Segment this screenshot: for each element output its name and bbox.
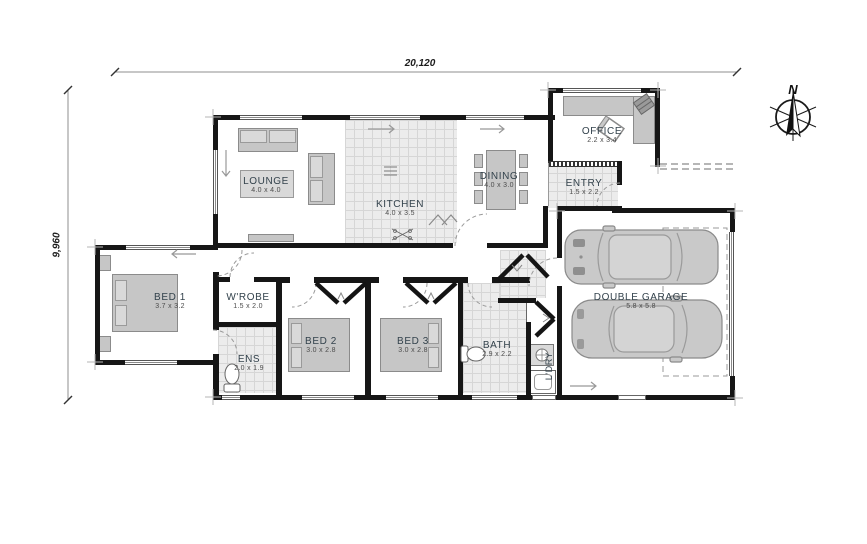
room-label-bath: BATH 2.9 x 2.2 — [482, 340, 512, 358]
room-label-bed2: BED 2 3.0 x 2.8 — [305, 336, 337, 354]
compass-icon: N — [770, 82, 816, 141]
room-label-ldry: L'DRY — [544, 352, 554, 381]
room-label-bed1: BED 1 3.7 x 3.2 — [154, 292, 186, 310]
room-label-dining: DINING 4.0 x 3.0 — [480, 171, 519, 189]
dimension-height: 9,960 — [52, 229, 63, 260]
plan-linework: N — [0, 0, 867, 544]
room-label-bed3: BED 3 3.0 x 2.8 — [397, 336, 429, 354]
eave-dashes — [660, 164, 737, 169]
room-label-wrobe: W'ROBE 1.5 x 2.0 — [226, 292, 269, 310]
room-label-ens: ENS 2.0 x 1.9 — [234, 354, 264, 372]
room-label-lounge: LOUNGE 4.0 x 4.0 — [243, 176, 289, 194]
stove-elements — [392, 229, 413, 240]
wardrobe-doors — [316, 283, 456, 303]
office-laptop — [633, 94, 654, 115]
room-label-office: OFFICE 2.2 x 3.4 — [582, 126, 622, 144]
compass-north-label: N — [788, 82, 798, 97]
floor-plan: N 20,120 9,960 LOUNGE 4.0 x 4.0 KITCHEN … — [0, 0, 867, 544]
car-1 — [565, 226, 718, 288]
room-label-kitchen: KITCHEN 4.0 x 3.5 — [376, 199, 424, 217]
dishwasher-stripes — [384, 167, 397, 175]
room-label-garage: DOUBLE GARAGE 5.8 x 5.8 — [594, 292, 689, 310]
room-label-entry: ENTRY 1.5 x 2.2 — [566, 178, 603, 196]
dimension-width: 20,120 — [402, 58, 439, 69]
pantry-shelves — [429, 215, 457, 225]
nook-walls — [498, 255, 554, 336]
